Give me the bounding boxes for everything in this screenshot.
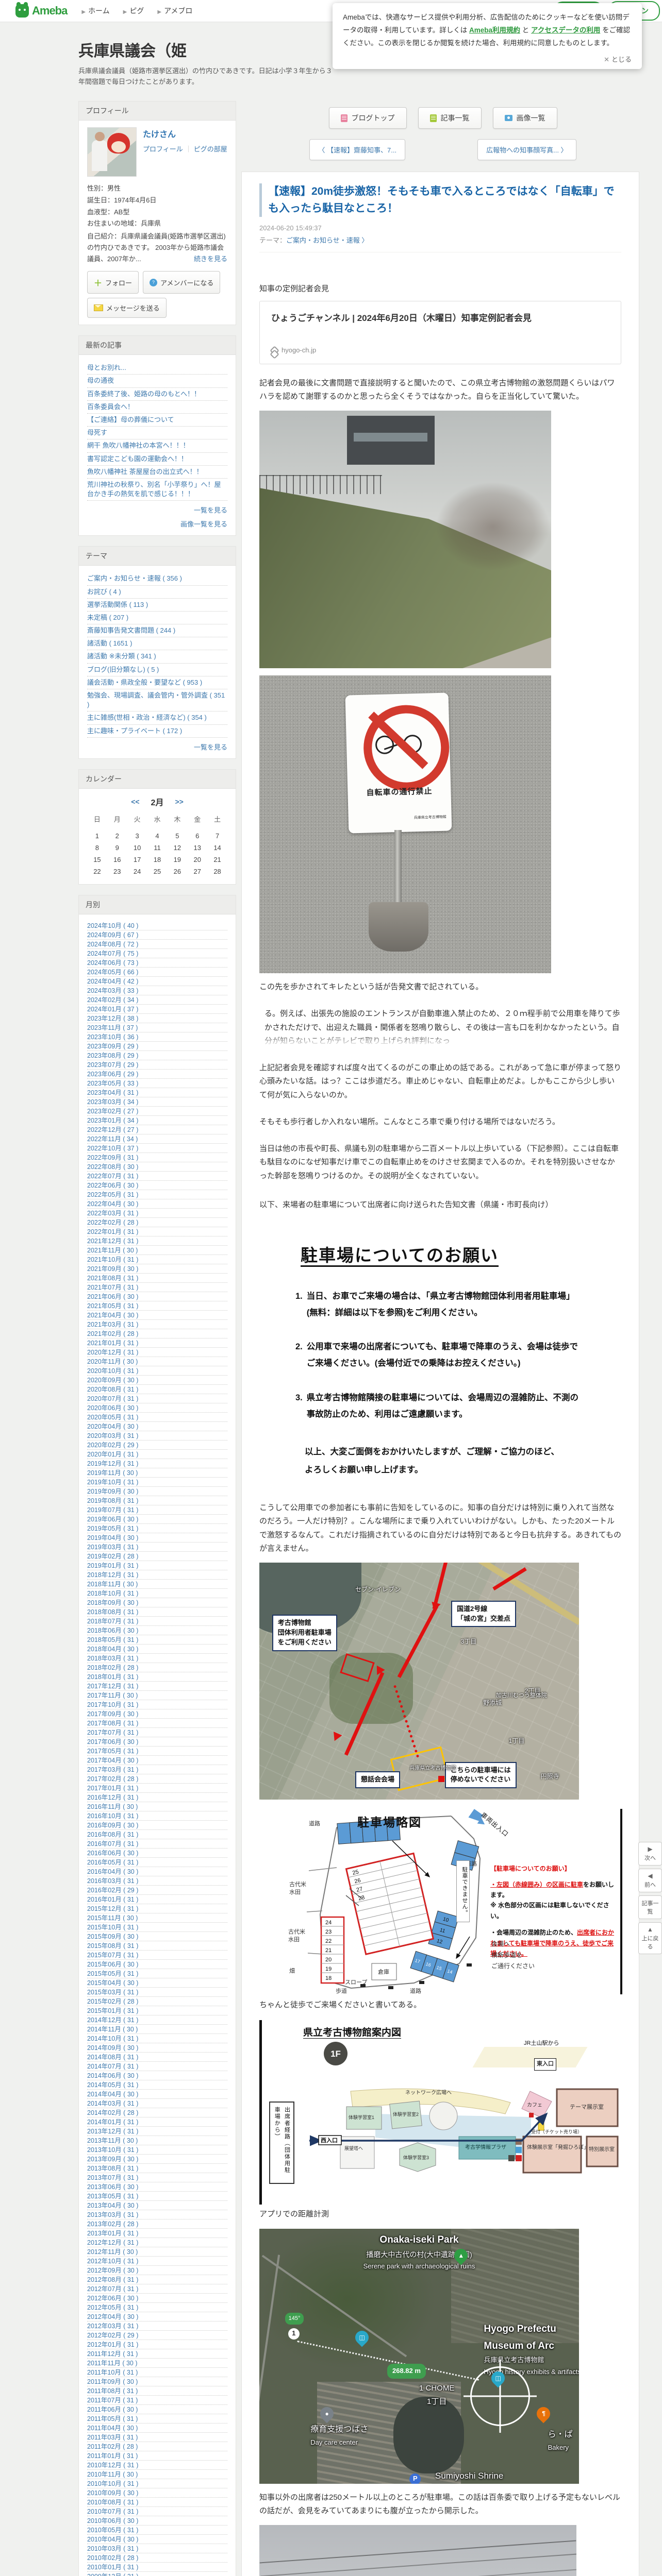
profile-link[interactable]: プロフィール [143, 145, 183, 153]
monthly-archive-link[interactable]: 2010年04月 ( 30 ) [87, 2535, 227, 2544]
article-date: 2024-06-20 15:49:37 [259, 224, 621, 232]
calendar-date[interactable]: 20 [187, 854, 207, 866]
article-list-nav-button[interactable]: 記事一覧 [638, 1895, 662, 1919]
monthly-archive-link[interactable]: 2011年07月 ( 31 ) [87, 2396, 227, 2405]
monthly-archive-link[interactable]: 2013年05月 ( 31 ) [87, 2192, 227, 2201]
monthly-archive-link[interactable]: 2017年10月 ( 31 ) [87, 1700, 227, 1709]
calendar-header: カレンダー [79, 770, 236, 789]
message-button[interactable]: メッセージを送る [87, 298, 167, 318]
monthly-archive-link[interactable]: 2024年06月 ( 73 ) [87, 958, 227, 968]
topbar-nav-home[interactable]: ▶ホーム [81, 6, 109, 16]
recent-article-link[interactable]: 百条委員会へ！ [87, 401, 227, 414]
title-accent-bar [259, 183, 262, 217]
monthly-archive-link[interactable]: 2024年01月 ( 37 ) [87, 1005, 227, 1014]
monthly-archive-link[interactable]: 2010年05月 ( 31 ) [87, 2526, 227, 2535]
document-title: 駐車場についてのお願い [301, 1241, 616, 1270]
monthly-archive-link[interactable]: 2012年06月 ( 30 ) [87, 2294, 227, 2303]
monthly-archive-link[interactable]: 2016年02月 ( 29 ) [87, 1886, 227, 1895]
monthly-archive-link[interactable]: 2014年02月 ( 28 ) [87, 2108, 227, 2117]
calendar-date[interactable]: 6 [187, 830, 207, 842]
monthly-archive-link[interactable]: 2014年06月 ( 30 ) [87, 2071, 227, 2080]
profile-name[interactable]: たけさん [143, 127, 227, 140]
monthly-archive-link[interactable]: 2021年05月 ( 31 ) [87, 1301, 227, 1311]
blog-top-icon [341, 114, 347, 122]
profile-detail-line: 性別：男性 [87, 183, 227, 195]
theme-link[interactable]: 斎藤知事告発文書問題 ( 244 ) [87, 624, 227, 637]
monthly-archive-link[interactable]: 2013年06月 ( 30 ) [87, 2182, 227, 2192]
recent-article-link[interactable]: 【ご連絡】母の葬儀について [87, 414, 227, 427]
svg-text:24: 24 [325, 1920, 332, 1926]
monthly-archive-link[interactable]: 2023年05月 ( 33 ) [87, 1079, 227, 1088]
theme-link[interactable]: ブログ(旧分類なし) ( 5 ) [87, 664, 227, 676]
monthly-archive-link[interactable]: 2011年05月 ( 31 ) [87, 2414, 227, 2424]
monthly-archive-link[interactable]: 2021年06月 ( 30 ) [87, 1292, 227, 1301]
monthly-archive-link[interactable]: 2015年10月 ( 31 ) [87, 1923, 227, 1932]
bearing-badge: 145° [285, 2313, 304, 2325]
monthly-archive-link[interactable]: 2015年01月 ( 31 ) [87, 2006, 227, 2015]
monthly-archive-link[interactable]: 2012年08月 ( 31 ) [87, 2275, 227, 2284]
link-card[interactable]: ひょうごチャンネル | 2024年6月20日（木曜日）知事定例記者会見 hyog… [259, 301, 621, 364]
monthly-archive-link[interactable]: 2013年03月 ( 31 ) [87, 2210, 227, 2219]
monthly-archive-link[interactable]: 2024年08月 ( 72 ) [87, 940, 227, 949]
monthly-archive-link[interactable]: 2016年06月 ( 30 ) [87, 1849, 227, 1858]
monthly-archive-link[interactable]: 2016年08月 ( 31 ) [87, 1830, 227, 1839]
monthly-archive-link[interactable]: 2010年03月 ( 31 ) [87, 2544, 227, 2553]
monthly-archive-link[interactable]: 2014年07月 ( 31 ) [87, 2062, 227, 2071]
monthly-archive-link[interactable]: 2019年03月 ( 31 ) [87, 1543, 227, 1552]
monthly-archive-link[interactable]: 2013年12月 ( 31 ) [87, 2127, 227, 2136]
monthly-archive-link[interactable]: 2020年01月 ( 31 ) [87, 1450, 227, 1459]
monthly-archive-link[interactable]: 2018年01月 ( 31 ) [87, 1672, 227, 1682]
monthly-archive-link[interactable]: 2011年03月 ( 31 ) [87, 2433, 227, 2442]
monthly-archive-link[interactable]: 2010年01月 ( 31 ) [87, 2563, 227, 2572]
monthly-archive-link[interactable]: 2019年08月 ( 31 ) [87, 1496, 227, 1505]
monthly-archive-link[interactable]: 2023年09月 ( 29 ) [87, 1042, 227, 1051]
monthly-archive-link[interactable]: 2024年02月 ( 34 ) [87, 995, 227, 1005]
svg-text:体験展示室「発掘ひろば」: 体験展示室「発掘ひろば」 [527, 2144, 589, 2150]
cookie-close-button[interactable]: ✕とじる [343, 54, 632, 64]
monthly-archive-link[interactable]: 2014年10月 ( 31 ) [87, 2034, 227, 2043]
monthly-archive-link[interactable]: 2012年03月 ( 31 ) [87, 2321, 227, 2331]
monthly-archive-link[interactable]: 2018年04月 ( 30 ) [87, 1645, 227, 1654]
calendar-date[interactable]: 12 [167, 842, 187, 854]
calendar-date[interactable]: 5 [167, 830, 187, 842]
calendar-day-header: 火 [127, 812, 147, 826]
article-list-button[interactable]: 記事一覧 [418, 107, 482, 129]
svg-text:スロープ: スロープ [345, 1979, 367, 1986]
theme-link[interactable]: 諸活動 ( 1651 ) [87, 637, 227, 650]
monthly-archive-link[interactable]: 2020年03月 ( 31 ) [87, 1431, 227, 1440]
monthly-archive-link[interactable]: 2016年09月 ( 30 ) [87, 1821, 227, 1830]
monthly-archive-link[interactable]: 2015年05月 ( 31 ) [87, 1969, 227, 1978]
monthly-archive-link[interactable]: 2013年01月 ( 31 ) [87, 2229, 227, 2238]
monthly-archive-link[interactable]: 2012年01月 ( 31 ) [87, 2340, 227, 2349]
monthly-archive-link[interactable]: 2022年01月 ( 31 ) [87, 1227, 227, 1236]
recent-article-link[interactable]: 荒川神社の秋祭り、別名「小芋祭り」へ！屋台かき手の熱気を肌で感じる！！！ [87, 479, 227, 501]
monthly-archive-link[interactable]: 2022年12月 ( 27 ) [87, 1125, 227, 1134]
cookie-text: Amebaでは、快適なサービス提供や利用分析、広告配信のためにクッキーなどを使い… [343, 11, 632, 50]
calendar-date[interactable]: 4 [147, 830, 168, 842]
monthly-archive-link[interactable]: 2016年05月 ( 31 ) [87, 1858, 227, 1867]
monthly-archive-link[interactable]: 2019年05月 ( 31 ) [87, 1524, 227, 1533]
monthly-archive-link[interactable]: 2015年12月 ( 31 ) [87, 1904, 227, 1913]
monthly-archive-link[interactable]: 2020年05月 ( 31 ) [87, 1413, 227, 1422]
red-marker [438, 1776, 444, 1782]
monthly-archive-link[interactable]: 2017年11月 ( 30 ) [87, 1691, 227, 1700]
monthly-archive-link[interactable]: 2023年03月 ( 34 ) [87, 1097, 227, 1107]
amember-button[interactable]: ?アメンバーになる [143, 271, 220, 294]
access-data-link[interactable]: アクセスデータの利用 [531, 26, 600, 34]
monthly-archive-link[interactable]: 2021年09月 ( 30 ) [87, 1264, 227, 1274]
monthly-archive-link[interactable]: 2018年09月 ( 30 ) [87, 1598, 227, 1607]
monthly-archive-link[interactable]: 2014年12月 ( 31 ) [87, 2015, 227, 2025]
envelope-icon [94, 304, 103, 311]
monthly-archive-link[interactable]: 2011年12月 ( 31 ) [87, 2349, 227, 2359]
monthly-archive-link[interactable]: 2023年08月 ( 29 ) [87, 1051, 227, 1060]
theme-link[interactable]: 主に雑感(世相・政治・経済など) ( 354 ) [87, 711, 227, 724]
recent-article-link[interactable]: 母の通夜 [87, 375, 227, 387]
recent-articles-header: 最新の記事 [79, 336, 236, 355]
monthly-archive-link[interactable]: 2023年06月 ( 29 ) [87, 1070, 227, 1079]
monthly-archive-link[interactable]: 2015年07月 ( 31 ) [87, 1951, 227, 1960]
monthly-archive-link[interactable]: 2012年02月 ( 29 ) [87, 2331, 227, 2340]
monthly-archive-link[interactable]: 2023年04月 ( 31 ) [87, 1088, 227, 1097]
monthly-archive-link[interactable]: 2021年12月 ( 31 ) [87, 1236, 227, 1246]
parking-notice-document[interactable]: 駐車場についてのお願い 1.当日、お車でご来場の場合は、「県立考古博物館団体利用… [259, 1225, 621, 1484]
article-title[interactable]: 【速報】20m徒歩激怒！そもそも車で入るところではなく「自転車」でも入ったら駄目… [268, 183, 621, 217]
calendar-date[interactable]: 7 [207, 830, 227, 842]
monthly-archive-link[interactable]: 2011年06月 ( 30 ) [87, 2405, 227, 2414]
monthly-archive-link[interactable]: 2015年08月 ( 31 ) [87, 1941, 227, 1951]
recent-article-link[interactable]: 母とお別れ... [87, 362, 227, 375]
recent-article-link[interactable]: 百条委終了後、姫路の母のもとへ！！ [87, 388, 227, 401]
monthly-archive-link[interactable]: 2022年11月 ( 34 ) [87, 1134, 227, 1144]
calendar-date[interactable]: 1 [87, 830, 107, 842]
recent-article-link[interactable]: 母死す [87, 427, 227, 439]
monthly-archive-link[interactable]: 2020年10月 ( 31 ) [87, 1366, 227, 1376]
photo-no-bicycle-sign[interactable]: 自転車の通行禁止 兵庫県立考古博物館 [259, 675, 551, 973]
monthly-archive-link[interactable]: 2020年07月 ( 31 ) [87, 1394, 227, 1403]
monthly-archive-link[interactable]: 2017年04月 ( 30 ) [87, 1756, 227, 1765]
monthly-archive-link[interactable]: 2012年11月 ( 30 ) [87, 2247, 227, 2257]
monthly-archive-link[interactable]: 2015年02月 ( 28 ) [87, 1997, 227, 2006]
monthly-archive-link[interactable]: 2022年06月 ( 30 ) [87, 1181, 227, 1190]
recent-see-images-link[interactable]: 画像一覧を見る [87, 515, 227, 529]
map-callout-parking: 考古博物館 団体利用者駐車場 をご利用ください [272, 1615, 337, 1651]
calendar-date[interactable]: 25 [147, 866, 168, 877]
back-to-top-button[interactable]: ▲上に戻る [638, 1922, 662, 1954]
monthly-archive-link[interactable]: 2019年06月 ( 30 ) [87, 1515, 227, 1524]
calendar-next-button[interactable]: >> [175, 798, 183, 806]
recent-see-all-link[interactable]: 一覧を見る [87, 501, 227, 515]
ameba-logo[interactable]: Ameba [15, 4, 67, 18]
prev-page-button[interactable]: ◀前へ [638, 1869, 662, 1892]
monthly-archive-link[interactable]: 2022年02月 ( 28 ) [87, 1218, 227, 1227]
monthly-archive-link[interactable]: 2021年11月 ( 30 ) [87, 1246, 227, 1255]
monthly-archive-link[interactable]: 2019年11月 ( 30 ) [87, 1468, 227, 1478]
monthly-archive-link[interactable]: 2011年10月 ( 31 ) [87, 2368, 227, 2377]
calendar-date[interactable]: 10 [127, 842, 147, 854]
monthly-archive-link[interactable]: 2012年09月 ( 30 ) [87, 2266, 227, 2275]
monthly-archive-link[interactable]: 2018年11月 ( 30 ) [87, 1580, 227, 1589]
svg-text:道路: 道路 [309, 1820, 320, 1827]
monthly-archive-link[interactable]: 2017年06月 ( 30 ) [87, 1737, 227, 1747]
monthly-archive-link[interactable]: 2018年02月 ( 28 ) [87, 1663, 227, 1672]
museum-floor-plan[interactable]: 県立考古博物館案内図 1F JR土山駅から 東入口 出席者経路（団体用駐車場から… [259, 2020, 623, 2205]
monthly-archive-link[interactable]: 2013年07月 ( 31 ) [87, 2173, 227, 2182]
calendar-date[interactable]: 11 [147, 842, 168, 854]
recent-article-link[interactable]: 網干 魚吹八幡神社の本宮へ！！！ [87, 439, 227, 452]
calendar-date[interactable]: 21 [207, 854, 227, 866]
monthly-archive-link[interactable]: 2010年07月 ( 31 ) [87, 2507, 227, 2516]
monthly-archive-link[interactable]: 2017年08月 ( 31 ) [87, 1719, 227, 1728]
monthly-archive-link[interactable]: 2016年10月 ( 31 ) [87, 1811, 227, 1821]
monthly-archive-link[interactable]: 2014年05月 ( 31 ) [87, 2080, 227, 2090]
monthly-archive-link[interactable]: 2019年02月 ( 28 ) [87, 1552, 227, 1561]
monthly-archive-link[interactable]: 2015年09月 ( 30 ) [87, 1932, 227, 1941]
monthly-archive-link[interactable]: 2017年05月 ( 31 ) [87, 1747, 227, 1756]
monthly-archive-link[interactable]: 2024年04月 ( 42 ) [87, 977, 227, 986]
calendar-date[interactable]: 3 [127, 830, 147, 842]
theme-link[interactable]: 主に趣味・プライベート ( 172 ) [87, 725, 227, 738]
monthly-archive-link[interactable]: 2023年07月 ( 29 ) [87, 1060, 227, 1070]
monthly-archive-link[interactable]: 2012年10月 ( 31 ) [87, 2257, 227, 2266]
paragraph: こうして公用車での参加者にも事前に告知をしているのに。知事の自分だけは特別に乗り… [259, 1501, 621, 1555]
monthly-archive-link[interactable]: 2018年12月 ( 31 ) [87, 1570, 227, 1580]
monthly-archive-link[interactable]: 2011年08月 ( 31 ) [87, 2386, 227, 2396]
monthly-archive-link[interactable]: 2016年01月 ( 31 ) [87, 1895, 227, 1904]
monthly-archive-link[interactable]: 2015年03月 ( 31 ) [87, 1988, 227, 1997]
monthly-archive-link[interactable]: 2009年12月 ( 31 ) [87, 2572, 227, 2576]
calendar-date[interactable]: 14 [207, 842, 227, 854]
monthly-archive-link[interactable]: 2016年03月 ( 31 ) [87, 1876, 227, 1886]
image-list-button[interactable]: 画像一覧 [493, 107, 557, 129]
monthly-archive-link[interactable]: 2010年08月 ( 31 ) [87, 2498, 227, 2507]
monthly-archive-link[interactable]: 2022年03月 ( 31 ) [87, 1209, 227, 1218]
monthly-archive-link[interactable]: 2011年01月 ( 31 ) [87, 2451, 227, 2461]
aerial-route-map[interactable]: 国道2号線 「城の宮」交差点 考古博物館 団体利用者駐車場 をご利用ください 懇… [259, 1563, 579, 1800]
calendar-date[interactable]: 17 [127, 854, 147, 866]
recent-article-link[interactable]: 書写認定こども園の運動会へ！！ [87, 453, 227, 466]
monthly-archive-link[interactable]: 2017年03月 ( 31 ) [87, 1765, 227, 1774]
svg-text:19: 19 [325, 1966, 332, 1972]
monthly-archive-link[interactable]: 2022年08月 ( 30 ) [87, 1162, 227, 1172]
monthly-archive-link[interactable]: 2013年02月 ( 28 ) [87, 2219, 227, 2229]
topbar-nav-pigg[interactable]: ▶ピグ [123, 6, 144, 16]
monthly-archive-link[interactable]: 2017年02月 ( 28 ) [87, 1774, 227, 1784]
see-more-link[interactable]: 続きを見る [194, 253, 227, 265]
right-arrow-icon: ▶ [640, 1845, 660, 1853]
monthly-archive-link[interactable]: 2013年09月 ( 30 ) [87, 2155, 227, 2164]
calendar-day-header: 月 [107, 812, 127, 826]
monthly-archive-link[interactable]: 2024年07月 ( 75 ) [87, 949, 227, 958]
monthly-archive-link[interactable]: 2019年10月 ( 31 ) [87, 1478, 227, 1487]
monthly-archive-link[interactable]: 2022年10月 ( 37 ) [87, 1144, 227, 1153]
left-arrow-icon: ◀ [640, 1872, 660, 1879]
monthly-archive-link[interactable]: 2018年08月 ( 31 ) [87, 1607, 227, 1617]
monthly-archive-link[interactable]: 2021年10月 ( 31 ) [87, 1255, 227, 1264]
monthly-archive-link[interactable]: 2022年09月 ( 31 ) [87, 1153, 227, 1162]
calendar-date[interactable]: 28 [207, 866, 227, 877]
monthly-archive-link[interactable]: 2021年04月 ( 30 ) [87, 1311, 227, 1320]
monthly-archive-link[interactable]: 2020年11月 ( 30 ) [87, 1357, 227, 1366]
parking-lot-diagram[interactable]: 駐車場略図 車両出入口 [259, 1809, 622, 1994]
monthly-archive-link[interactable]: 2020年04月 ( 30 ) [87, 1422, 227, 1431]
monthly-archive-link[interactable]: 2010年12月 ( 31 ) [87, 2461, 227, 2470]
calendar-prev-button[interactable]: << [131, 798, 139, 806]
monthly-archive-link[interactable]: 2014年09月 ( 30 ) [87, 2043, 227, 2053]
monthly-archive-link[interactable]: 2023年10月 ( 36 ) [87, 1032, 227, 1042]
profile-detail-line: 血液型：AB型 [87, 207, 227, 218]
monthly-archive-link[interactable]: 2014年01月 ( 31 ) [87, 2117, 227, 2127]
calendar-date[interactable]: 19 [167, 854, 187, 866]
photo-group-parking-lot[interactable] [259, 2525, 576, 2576]
calendar-date[interactable]: 9 [107, 842, 127, 854]
monthly-archive-link[interactable]: 2012年05月 ( 31 ) [87, 2303, 227, 2312]
monthly-archive-link[interactable]: 2013年08月 ( 31 ) [87, 2164, 227, 2173]
calendar-dates: 1234567891011121314151617181920212223242… [87, 830, 227, 877]
calendar-date[interactable]: 26 [167, 866, 187, 877]
monthly-archive-link[interactable]: 2016年12月 ( 31 ) [87, 1793, 227, 1802]
calendar-date[interactable]: 15 [87, 854, 107, 866]
topbar-nav-ameblo[interactable]: ▶アメブロ [157, 6, 192, 16]
calendar-date[interactable]: 22 [87, 866, 107, 877]
themes-box: テーマ ご案内・お知らせ・速報 ( 356 )お詫び ( 4 )選挙活動関係 (… [78, 546, 236, 758]
theme-link[interactable]: お詫び ( 4 ) [87, 586, 227, 599]
monthly-archive-link[interactable]: 2016年07月 ( 31 ) [87, 1839, 227, 1849]
calendar-date[interactable]: 27 [187, 866, 207, 877]
calendar-date[interactable]: 2 [107, 830, 127, 842]
monthly-archive-link[interactable]: 2013年04月 ( 30 ) [87, 2201, 227, 2210]
attendee-route-label: 出席者経路（団体用駐車場から） [269, 2102, 294, 2184]
prev-article-link[interactable]: 〈 【速報】齋藤知事、7... [309, 139, 405, 160]
monthly-archive-list: 2024年10月 ( 40 )2024年09月 ( 67 )2024年08月 (… [87, 921, 227, 2576]
avatar[interactable] [87, 127, 137, 177]
monthly-archive-link[interactable]: 2019年12月 ( 31 ) [87, 1459, 227, 1468]
monthly-archive-link[interactable]: 2018年03月 ( 31 ) [87, 1654, 227, 1663]
monthly-archive-link[interactable]: 2021年08月 ( 31 ) [87, 1274, 227, 1283]
monthly-archive-link[interactable]: 2024年10月 ( 40 ) [87, 921, 227, 930]
next-page-button[interactable]: ▶次へ [638, 1842, 662, 1866]
monthly-archive-link[interactable]: 2013年11月 ( 30 ) [87, 2136, 227, 2145]
monthly-archive-link[interactable]: 2020年12月 ( 31 ) [87, 1348, 227, 1357]
monthly-archive-link[interactable]: 2015年11月 ( 30 ) [87, 1913, 227, 1923]
monthly-archive-link[interactable]: 2022年04月 ( 30 ) [87, 1199, 227, 1209]
monthly-archive-link[interactable]: 2024年05月 ( 66 ) [87, 968, 227, 977]
monthly-archive-link[interactable]: 2016年11月 ( 30 ) [87, 1802, 227, 1811]
calendar-date[interactable]: 23 [107, 866, 127, 877]
monthly-archive-link[interactable]: 2014年11月 ( 30 ) [87, 2025, 227, 2034]
theme-link[interactable]: ご案内・お知らせ・速報 〉 [286, 236, 368, 244]
monthly-archive-link[interactable]: 2012年07月 ( 31 ) [87, 2284, 227, 2294]
monthly-archive-link[interactable]: 2024年09月 ( 67 ) [87, 930, 227, 940]
monthly-archive-link[interactable]: 2021年02月 ( 28 ) [87, 1329, 227, 1338]
theme-link[interactable]: ご案内・お知らせ・速報 ( 356 ) [87, 572, 227, 585]
monthly-archive-link[interactable]: 2019年09月 ( 30 ) [87, 1487, 227, 1496]
monthly-archive-link[interactable]: 2017年07月 ( 31 ) [87, 1728, 227, 1737]
monthly-archive-link[interactable]: 2023年12月 ( 38 ) [87, 1014, 227, 1023]
monthly-archive-link[interactable]: 2017年12月 ( 31 ) [87, 1682, 227, 1691]
monthly-archive-link[interactable]: 2018年10月 ( 31 ) [87, 1589, 227, 1598]
monthly-archive-link[interactable]: 2021年03月 ( 31 ) [87, 1320, 227, 1329]
monthly-archive-link[interactable]: 2024年03月 ( 33 ) [87, 986, 227, 995]
satellite-distance-map[interactable]: Onaka-iseki Park 播磨大中古代の村(大中遺跡公園) Serene… [259, 2229, 579, 2484]
pigg-room-link[interactable]: ピグの部屋 [194, 145, 227, 153]
recent-article-link[interactable]: 魚吹八幡神社 茶屋屋台の出立式へ！！ [87, 466, 227, 479]
calendar-date[interactable]: 18 [147, 854, 168, 866]
monthly-archive-link[interactable]: 2014年08月 ( 31 ) [87, 2053, 227, 2062]
monthly-archive-link[interactable]: 2021年01月 ( 31 ) [87, 1338, 227, 1348]
calendar-date[interactable]: 13 [187, 842, 207, 854]
monthly-archive-link[interactable]: 2018年06月 ( 30 ) [87, 1626, 227, 1635]
monthly-archive-link[interactable]: 2010年11月 ( 30 ) [87, 2470, 227, 2479]
blog-top-button[interactable]: ブログトップ [329, 107, 407, 129]
calendar-day-headers: 日月火水木金土 [87, 812, 227, 826]
monthly-archive-link[interactable]: 2019年07月 ( 31 ) [87, 1505, 227, 1515]
theme-link[interactable]: 議会活動・県政全般・要望など ( 953 ) [87, 676, 227, 689]
monthly-archive-link[interactable]: 2022年05月 ( 31 ) [87, 1190, 227, 1199]
monthly-archive-link[interactable]: 2018年07月 ( 31 ) [87, 1617, 227, 1626]
monthly-archive-link[interactable]: 2020年08月 ( 31 ) [87, 1385, 227, 1394]
monthly-archive-link[interactable]: 2011年02月 ( 28 ) [87, 2442, 227, 2451]
terms-link[interactable]: Ameba利用規約 [469, 26, 520, 34]
monthly-archive-link[interactable]: 2011年09月 ( 30 ) [87, 2377, 227, 2386]
monthly-archive-link[interactable]: 2019年04月 ( 30 ) [87, 1533, 227, 1543]
themes-see-all-link[interactable]: 一覧を見る [87, 738, 227, 752]
monthly-archive-link[interactable]: 2023年01月 ( 34 ) [87, 1116, 227, 1125]
calendar-date[interactable]: 24 [127, 866, 147, 877]
theme-link[interactable]: 未定稿 ( 207 ) [87, 612, 227, 624]
monthly-archive-link[interactable]: 2017年09月 ( 30 ) [87, 1709, 227, 1719]
monthly-archive-link[interactable]: 2012年12月 ( 31 ) [87, 2238, 227, 2247]
monthly-archive-link[interactable]: 2020年02月 ( 29 ) [87, 1440, 227, 1450]
theme-link[interactable]: 諸活動 ※未分類 ( 341 ) [87, 650, 227, 663]
monthly-archive-link[interactable]: 2022年07月 ( 31 ) [87, 1172, 227, 1181]
theme-link[interactable]: 勉強会、現場調査、議会管内・管外調査 ( 351 ) [87, 689, 227, 711]
monthly-archive-link[interactable]: 2011年11月 ( 30 ) [87, 2359, 227, 2368]
monthly-archive-link[interactable]: 2010年09月 ( 30 ) [87, 2488, 227, 2498]
monthly-archive-link[interactable]: 2014年03月 ( 31 ) [87, 2099, 227, 2108]
monthly-archive-link[interactable]: 2014年04月 ( 30 ) [87, 2090, 227, 2099]
monthly-archive-link[interactable]: 2012年04月 ( 30 ) [87, 2312, 227, 2321]
monthly-archive-header: 月別 [79, 895, 236, 914]
monthly-archive-link[interactable]: 2021年07月 ( 31 ) [87, 1283, 227, 1292]
monthly-archive-link[interactable]: 2017年01月 ( 31 ) [87, 1784, 227, 1793]
monthly-archive-link[interactable]: 2019年01月 ( 31 ) [87, 1561, 227, 1570]
monthly-archive-link[interactable]: 2015年04月 ( 30 ) [87, 1978, 227, 1988]
photo-embankment[interactable] [259, 411, 551, 668]
monthly-archive-link[interactable]: 2013年10月 ( 31 ) [87, 2145, 227, 2155]
monthly-archive-link[interactable]: 2016年04月 ( 30 ) [87, 1867, 227, 1876]
monthly-archive-link[interactable]: 2010年06月 ( 30 ) [87, 2516, 227, 2526]
next-article-link[interactable]: 広報物への知事顔写真... 〉 [477, 139, 576, 160]
article-theme: テーマ：ご案内・お知らせ・速報 〉 [259, 235, 621, 252]
monthly-archive-link[interactable]: 2020年06月 ( 30 ) [87, 1403, 227, 1413]
follow-button[interactable]: ＋フォロー [87, 271, 139, 294]
monthly-archive-link[interactable]: 2023年11月 ( 37 ) [87, 1023, 227, 1032]
calendar-date[interactable]: 16 [107, 854, 127, 866]
monthly-archive-link[interactable]: 2010年02月 ( 28 ) [87, 2553, 227, 2563]
monthly-archive-link[interactable]: 2011年04月 ( 30 ) [87, 2424, 227, 2433]
monthly-archive-link[interactable]: 2015年06月 ( 30 ) [87, 1960, 227, 1969]
monthly-archive-link[interactable]: 2020年09月 ( 30 ) [87, 1376, 227, 1385]
monthly-archive-link[interactable]: 2010年10月 ( 31 ) [87, 2479, 227, 2488]
link-icon [270, 346, 279, 355]
calendar-date[interactable]: 8 [87, 842, 107, 854]
theme-link[interactable]: 選挙活動関係 ( 113 ) [87, 599, 227, 612]
monthly-archive-link[interactable]: 2018年05月 ( 31 ) [87, 1635, 227, 1645]
monthly-archive-link[interactable]: 2023年02月 ( 27 ) [87, 1107, 227, 1116]
